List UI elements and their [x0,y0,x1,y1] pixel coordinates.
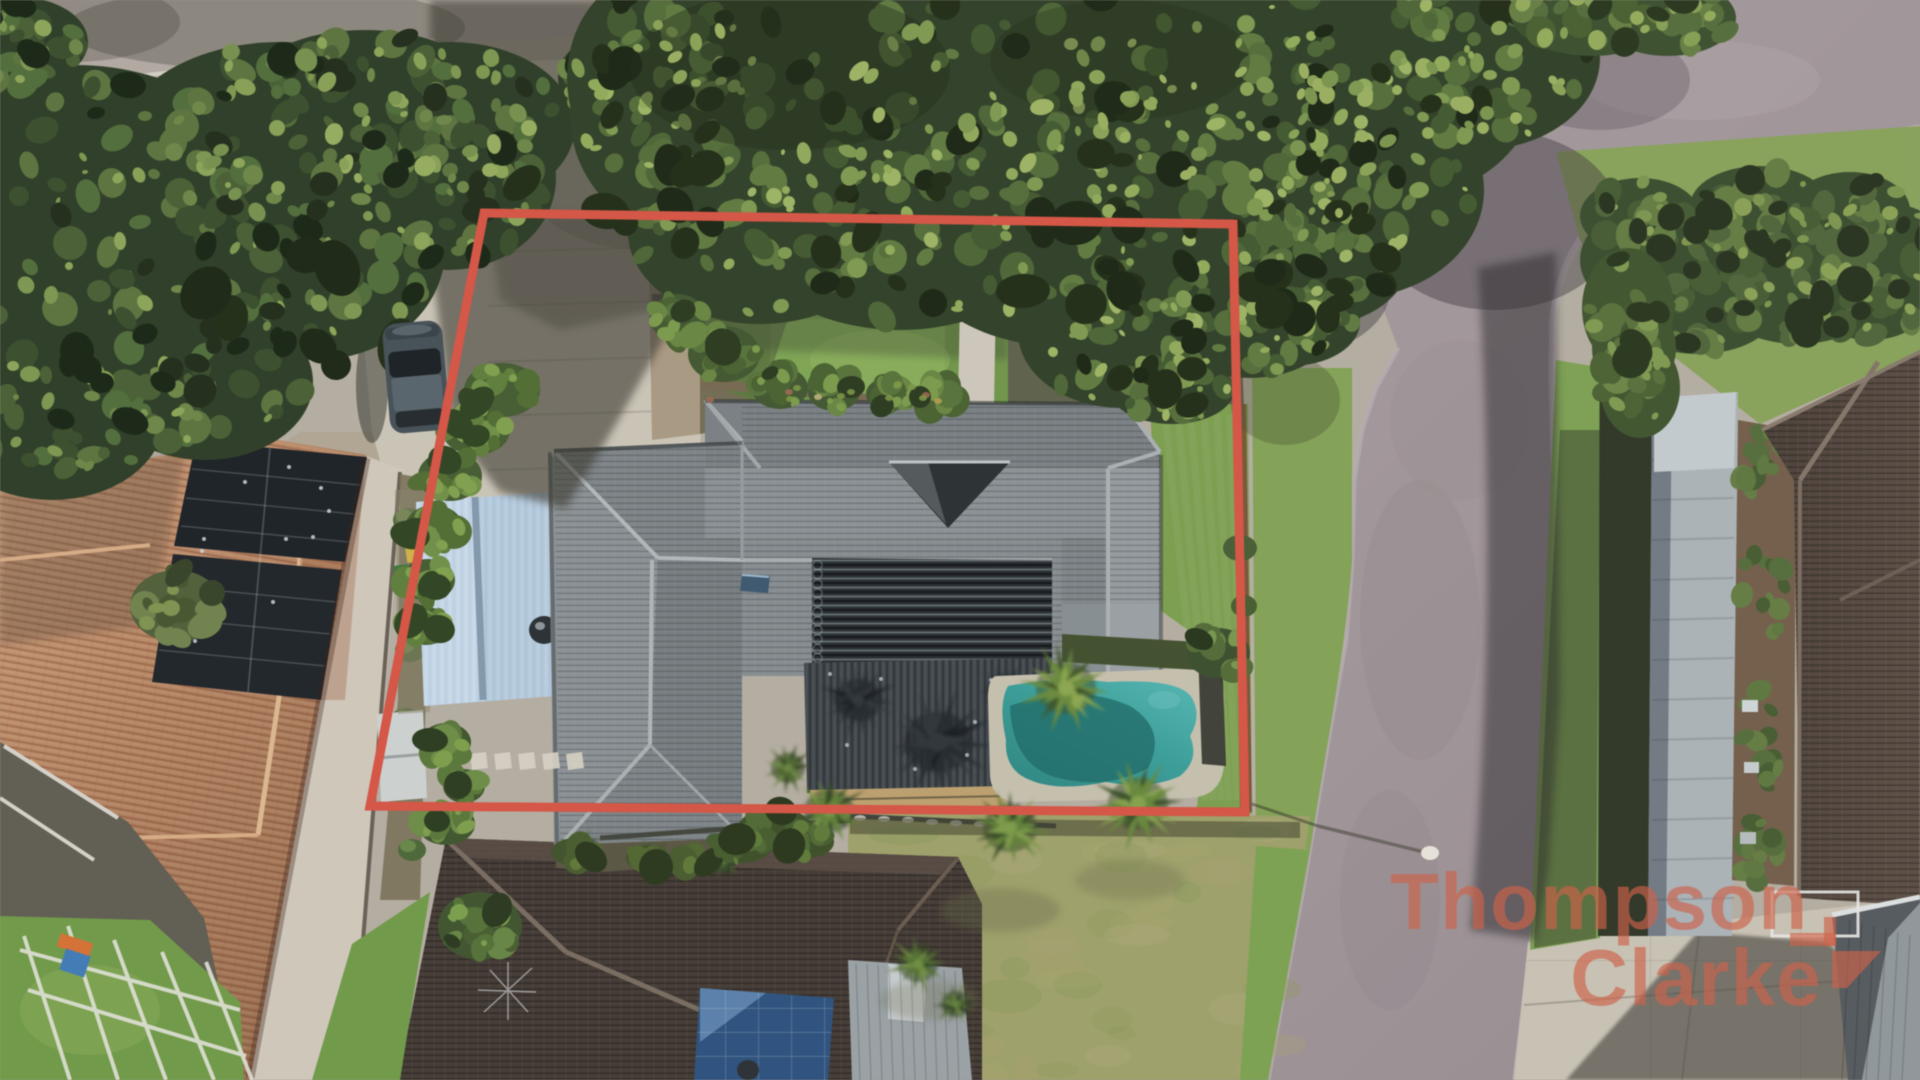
svg-text:Clarke: Clarke [1570,933,1822,1022]
